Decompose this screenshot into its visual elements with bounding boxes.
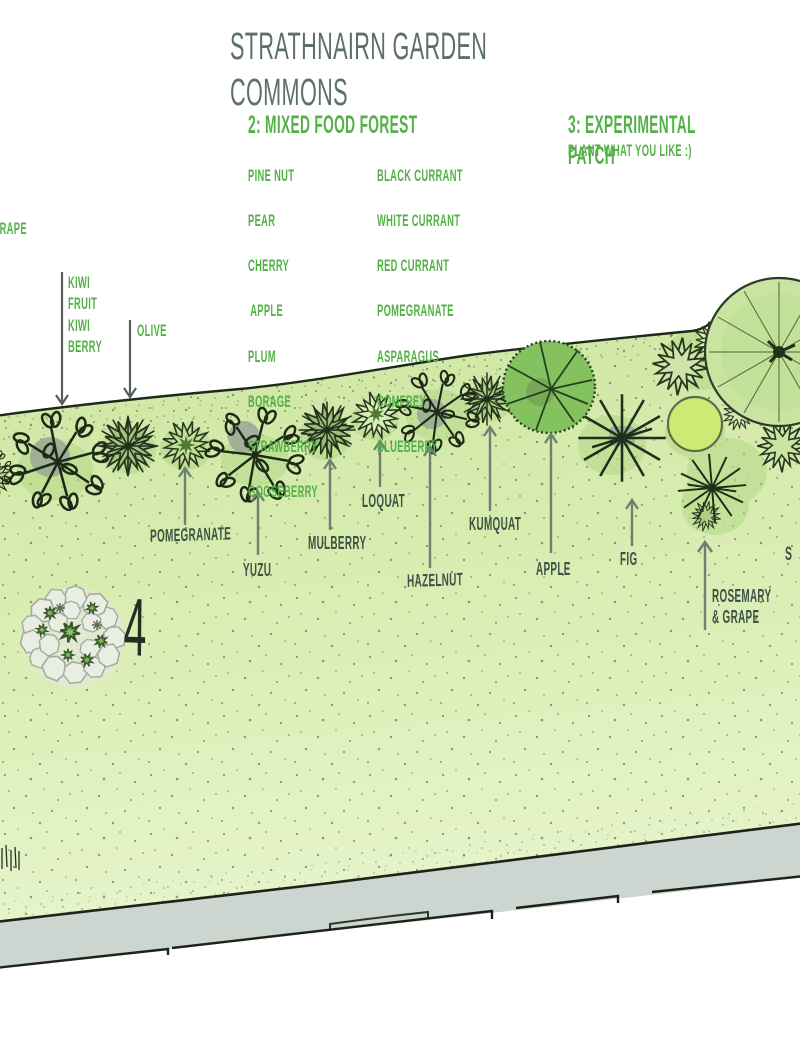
list-item: APPLE <box>248 301 318 326</box>
edge-partial-label: S <box>785 543 792 566</box>
list-item: ASPARAGUS <box>377 347 463 372</box>
page-title: STRATHNAIRN GARDEN COMMONS <box>230 24 555 117</box>
mulberry-label: MULBERRY <box>308 533 366 555</box>
apple-label: APPLE <box>536 559 571 581</box>
blob-shrub <box>668 397 722 451</box>
pomegranate-label: POMEGRANATE <box>150 523 231 548</box>
food-forest-list-col1: PINE NUT PEAR CHERRY APPLE PLUM BORAGE S… <box>248 145 318 528</box>
list-item: COMFREY <box>377 392 463 417</box>
list-item: BLUEBERRY <box>377 437 463 462</box>
grape-label: GRAPE <box>0 219 27 240</box>
list-item: STRAWBERRY <box>248 437 318 462</box>
garden-plan-canvas: STRATHNAIRN GARDEN COMMONS 2: MIXED FOOD… <box>0 0 800 1048</box>
list-item: WHITE CURRANT <box>377 211 463 236</box>
list-item: BLACK CURRANT <box>377 166 463 191</box>
loquat-label: LOQUAT <box>362 491 405 513</box>
zone-number: 4 <box>123 578 147 679</box>
section-food-forest-heading: 2: MIXED FOOD FOREST <box>248 110 417 141</box>
list-item: PEAR <box>248 211 318 236</box>
food-forest-list-col2: BLACK CURRANT WHITE CURRANT RED CURRANT … <box>377 145 463 482</box>
list-item: PINE NUT <box>248 166 318 191</box>
yuzu-label: YUZU <box>243 560 271 582</box>
list-item: POMEGRANATE <box>377 301 463 326</box>
list-item: GOOSEBERRY <box>248 482 318 507</box>
olive-leader-arrow <box>124 320 136 397</box>
olive-label: OLIVE <box>137 321 167 342</box>
fig-label: FIG <box>620 549 637 571</box>
list-item: RED CURRANT <box>377 256 463 281</box>
list-item: BORAGE <box>248 392 318 417</box>
kumquat-label: KUMQUAT <box>469 514 521 536</box>
kiwi-leader-arrow <box>56 272 68 404</box>
hazelnut-label: HAZELNUT <box>407 569 463 593</box>
rosemary-grape-label: ROSEMARY & GRAPE <box>712 586 771 628</box>
section-experimental-subtitle: PLANT WHAT YOU LIKE :) <box>568 141 692 162</box>
apple-tree <box>503 341 595 433</box>
list-item: PLUM <box>248 347 318 372</box>
kiwi-label: KIWI FRUIT KIWI BERRY <box>68 272 102 358</box>
list-item: CHERRY <box>248 256 318 281</box>
